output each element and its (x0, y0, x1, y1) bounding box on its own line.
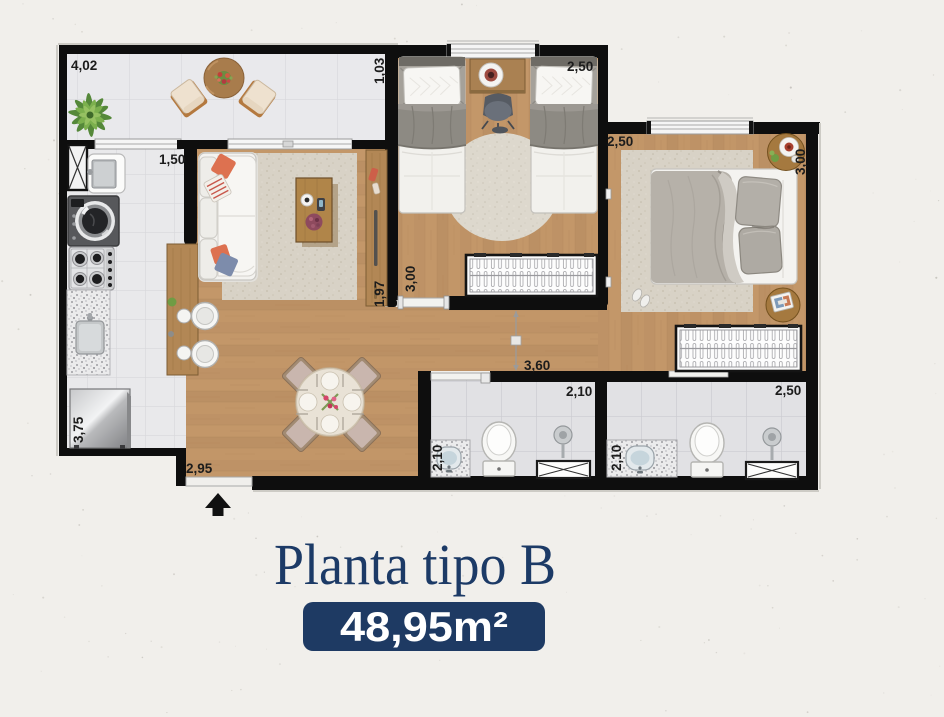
svg-text:1,97: 1,97 (372, 281, 387, 307)
svg-text:2,10: 2,10 (430, 445, 445, 471)
svg-text:3,00: 3,00 (793, 149, 808, 175)
svg-text:3,00: 3,00 (403, 266, 418, 292)
svg-text:3,60: 3,60 (524, 358, 550, 373)
svg-text:2,50: 2,50 (567, 59, 593, 74)
svg-text:2,50: 2,50 (775, 383, 801, 398)
svg-text:Planta tipo B: Planta tipo B (274, 532, 556, 597)
svg-text:1,50: 1,50 (159, 152, 185, 167)
svg-text:1,03: 1,03 (372, 57, 387, 84)
svg-text:48,95m²: 48,95m² (340, 603, 508, 650)
svg-text:3,75: 3,75 (71, 416, 86, 443)
svg-text:2,50: 2,50 (607, 134, 633, 149)
svg-text:2,95: 2,95 (186, 461, 213, 476)
svg-text:2,10: 2,10 (566, 384, 592, 399)
svg-text:4,02: 4,02 (71, 58, 97, 73)
svg-text:2,10: 2,10 (609, 445, 624, 471)
